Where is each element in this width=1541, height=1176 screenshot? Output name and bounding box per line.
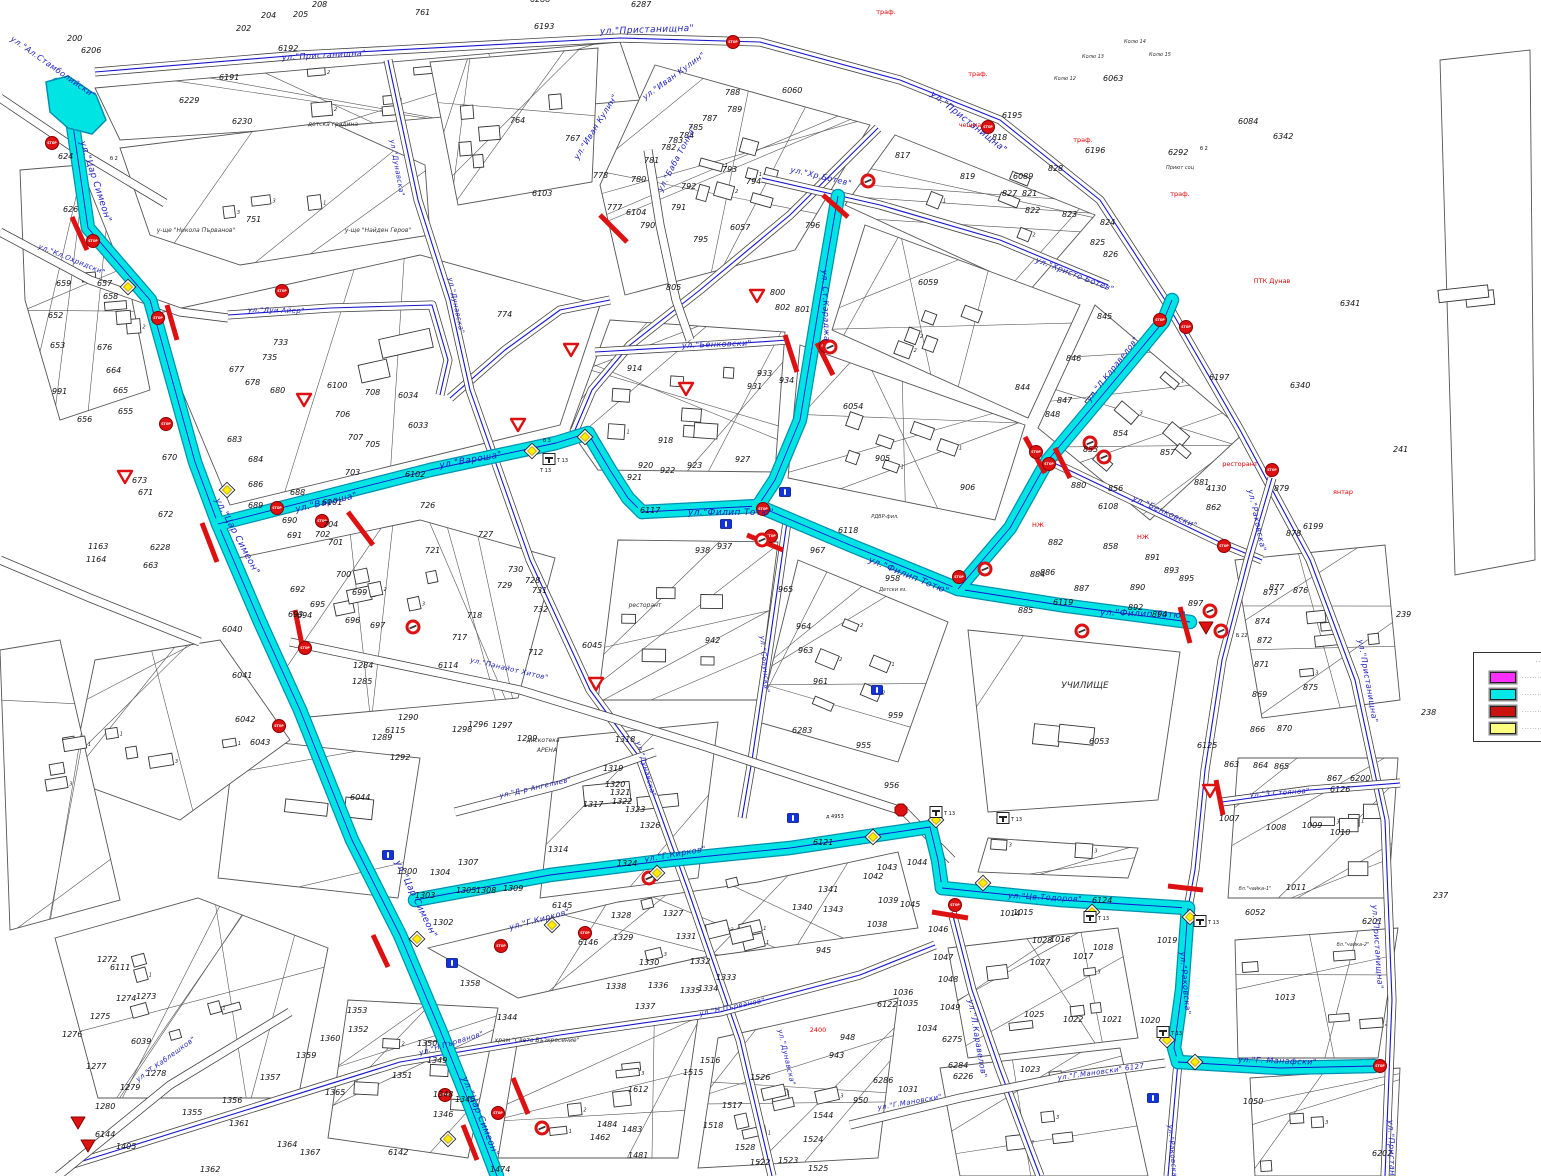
building-number: 1 <box>627 430 630 436</box>
parcel-number: 1483 <box>622 1125 642 1134</box>
parcel-number: 822 <box>1025 206 1040 215</box>
parcel-number: 1474 <box>490 1165 510 1174</box>
parcel-number: 6191 <box>219 73 239 82</box>
parcel-number: 1338 <box>606 982 626 991</box>
parcel-number: 653 <box>50 341 65 350</box>
parcel-number: 1337 <box>635 1002 656 1011</box>
parcel-number: 934 <box>779 376 794 385</box>
parcel-number: 664 <box>106 366 121 375</box>
parcel-number: 1020 <box>1140 1016 1160 1025</box>
building-number: 3 <box>1325 1120 1328 1126</box>
building-footprint <box>1075 843 1093 859</box>
parcel-number: 200 <box>67 34 82 43</box>
building-number: 3 <box>840 1094 843 1100</box>
parcel-number: 1330 <box>639 958 659 967</box>
yield-sign-icon <box>750 290 764 302</box>
parcel-number: 1017 <box>1073 952 1094 961</box>
parcel-number: 943 <box>829 1051 844 1060</box>
utility-annotation-label: 2400 <box>810 1026 827 1034</box>
building-footprint <box>311 101 333 117</box>
stop-sign-text: STOP <box>161 422 171 426</box>
parcel-number: 933 <box>757 369 772 378</box>
parcel-number: 1484 <box>597 1120 617 1129</box>
parcel-number: 706 <box>335 410 350 419</box>
parcel-number: 6102 <box>405 470 425 479</box>
parcel-number: 241 <box>1393 445 1408 454</box>
parcel-number: 6040 <box>222 625 242 634</box>
parcel-number: 789 <box>727 105 742 114</box>
parcel-number: 1331 <box>676 932 696 941</box>
building-number: 2 <box>920 334 923 340</box>
parcel-number: 856 <box>1108 484 1123 493</box>
parcel-number: 897 <box>1188 599 1204 608</box>
parcel-number: 751 <box>246 215 261 224</box>
parcel-number: 1329 <box>613 933 633 942</box>
parcel-number: 6199 <box>1303 522 1323 531</box>
parcel-number: 963 <box>798 646 813 655</box>
parcel-number: 821 <box>1022 189 1037 198</box>
parcel-number: 1612 <box>628 1085 648 1094</box>
parcel-number: 945 <box>816 946 831 955</box>
parcel-number: 781 <box>644 156 659 165</box>
priority-triangle-icon <box>71 1117 85 1129</box>
building-footprint <box>208 1001 222 1015</box>
parcel-number: 826 <box>1103 250 1118 259</box>
parcel-number: 847 <box>1057 396 1073 405</box>
parcel-number: 689 <box>248 501 263 510</box>
building-number: 1 <box>222 1006 225 1012</box>
parcel-number: 6059 <box>918 278 938 287</box>
legend-item-cyan-pipe: ········· <box>1490 686 1541 703</box>
parcel-number: 792 <box>681 182 696 191</box>
building-number: 1 <box>763 926 766 932</box>
parcel-number: 672 <box>158 510 173 519</box>
parcel-number: 688 <box>290 488 305 497</box>
parcel-number: 867 <box>1327 774 1343 783</box>
parcel-number: 6275 <box>942 1035 962 1044</box>
parcel-number: 1367 <box>300 1148 321 1157</box>
poi-label: бл."чайка-1" <box>1239 886 1272 892</box>
junction-sign-label: Т 13 <box>1207 920 1219 926</box>
parcel-number: 1516 <box>700 1056 720 1065</box>
building-number: 1 <box>787 1090 790 1096</box>
parcel-number: 1042 <box>863 872 883 881</box>
parcel-number: 239 <box>1396 610 1411 619</box>
parcel-number: 774 <box>497 310 512 319</box>
parcel-number: 1050 <box>1243 1097 1263 1106</box>
parcel-number: 6142 <box>388 1148 408 1157</box>
stop-sign-text: STOP <box>1219 544 1229 548</box>
parcel-number: 846 <box>1066 354 1081 363</box>
map-legend: ·· ···· ································… <box>1473 652 1541 742</box>
parcel-number: 626 <box>63 205 78 214</box>
parcel-number: 6292 <box>1168 148 1188 157</box>
parcel-number: 6043 <box>250 738 270 747</box>
parcel-number: 863 <box>1224 760 1239 769</box>
parcel-number: 1305 <box>456 886 476 895</box>
parcel-number: 937 <box>717 542 733 551</box>
junction-sign-label: Т 13 <box>556 458 568 464</box>
parcel-number: 1279 <box>120 1083 140 1092</box>
parcel-number: 801 <box>795 305 810 314</box>
parcel-number: 880 <box>1071 481 1086 490</box>
building-number: 3 <box>1056 1115 1059 1121</box>
stop-sign-text: STOP <box>954 575 964 579</box>
stop-sign-text: STOP <box>1155 318 1165 322</box>
parcel-number: 1046 <box>928 925 948 934</box>
stop-sign-text: STOP <box>274 724 284 728</box>
building-footprint <box>567 1103 582 1116</box>
parcel-number: 1525 <box>808 1164 828 1173</box>
parcel-number: 1307 <box>458 858 479 867</box>
yellow-pipe-swatch <box>1490 723 1516 734</box>
building-footprint <box>549 94 562 110</box>
building-footprint <box>1290 1113 1304 1123</box>
info-sign-glyph <box>1152 1095 1154 1101</box>
parcel-number: 1356 <box>222 1096 242 1105</box>
parcel-number: 791 <box>671 203 686 212</box>
building-footprint <box>105 727 118 739</box>
parcel-number: 1015 <box>1013 908 1033 917</box>
building-footprint <box>694 423 718 440</box>
parcel-number: 692 <box>290 585 305 594</box>
parcel-number: 6340 <box>1290 381 1310 390</box>
parcel-number: 624 <box>58 152 73 161</box>
stop-sign-text: STOP <box>1267 468 1277 472</box>
parcel-number: 761 <box>415 8 430 17</box>
yield-sign-icon <box>118 471 132 483</box>
legend-item-label: ········· <box>1522 709 1541 715</box>
parcel-number: 1044 <box>907 858 927 867</box>
parcel-number: 1332 <box>690 957 710 966</box>
parcel-number: 717 <box>452 633 468 642</box>
parcel-number: 873 <box>1263 588 1278 597</box>
parcel-number: 959 <box>888 711 903 720</box>
parcel-number: 848 <box>1045 410 1060 419</box>
parcel-number: 964 <box>796 622 811 631</box>
building-footprint <box>1090 1002 1101 1013</box>
parcel-number: 906 <box>960 483 975 492</box>
building-number: 3 <box>237 210 240 216</box>
utility-annotation-label: НЖ <box>1137 533 1149 541</box>
parcel-number: 1013 <box>1275 993 1295 1002</box>
parcel-number: 6053 <box>1089 737 1109 746</box>
parcel-number: 1034 <box>917 1024 937 1033</box>
parcel-number: 1164 <box>86 555 106 564</box>
parcel-number: 767 <box>565 134 581 143</box>
parcel-number: 819 <box>960 172 975 181</box>
parcel-number: 931 <box>747 382 762 391</box>
parcel-number: 6057 <box>730 223 751 232</box>
parcel-number: 858 <box>1103 542 1118 551</box>
parcel-number: 1526 <box>750 1073 770 1082</box>
parcel-number: 6144 <box>95 1130 115 1139</box>
poi-label: дискотека <box>525 737 559 744</box>
parcel-number: 1010 <box>1330 828 1350 837</box>
parcel-number: 764 <box>510 116 525 125</box>
building-footprint <box>473 154 484 168</box>
parcel-number: 788 <box>725 88 740 97</box>
parcel-number: 6200 <box>1350 774 1370 783</box>
sign-code-label: д 4953 <box>826 814 844 820</box>
parcel-number: 208 <box>312 0 327 9</box>
building-footprint <box>251 195 271 206</box>
parcel-number: 6196 <box>1085 146 1105 155</box>
poi-label: у-ще "Никола Първанов" <box>156 227 236 234</box>
parcel-number: 727 <box>478 530 494 539</box>
street-name-label: ул."Луи Айер" <box>247 306 305 315</box>
parcel-number: 1335 <box>680 986 700 995</box>
building-number: 3 <box>1140 411 1143 417</box>
poi-label: РДВР-фил. <box>871 514 898 520</box>
parcel-number: 704 <box>323 520 338 529</box>
parcel-number: 6229 <box>179 96 199 105</box>
parcel-number: 6342 <box>1273 132 1293 141</box>
building-footprint <box>622 614 636 623</box>
building-footprint <box>223 206 236 219</box>
building-number: 2 <box>402 1042 405 1048</box>
parcel-number: 961 <box>813 677 828 686</box>
map-viewport[interactable]: 2321233121212111112213221232313213131123… <box>0 0 1541 1176</box>
parcel-number: 828 <box>1048 164 1063 173</box>
parcel-number: 1359 <box>296 1051 316 1060</box>
junction-sign-label: Т 13 <box>1097 916 1109 922</box>
parcel-number: 6039 <box>131 1037 151 1046</box>
parcel-number: 927 <box>735 455 751 464</box>
parcel-number: 6052 <box>1245 908 1265 917</box>
parcel-number: 920 <box>638 461 653 470</box>
legend-item-label: ········· <box>1522 675 1541 681</box>
parcel-number: 866 <box>1250 725 1265 734</box>
parcel-number: 1324 <box>617 859 637 868</box>
building-number: 1 <box>891 662 894 668</box>
legend-item-label: ········· <box>1522 726 1541 732</box>
parcel-number: 4130 <box>1206 484 1226 493</box>
parcel-number: 697 <box>370 621 386 630</box>
parcel-number: 802 <box>775 303 790 312</box>
parcel-number: 733 <box>273 338 288 347</box>
legend-item-magenta-pipe: ········· <box>1490 669 1541 686</box>
parcel-number: 874 <box>1255 617 1270 626</box>
parcel-number: 1036 <box>893 988 913 997</box>
parcel-number: 708 <box>365 388 380 397</box>
building-number: 2 <box>1032 233 1035 239</box>
stop-sign-text: STOP <box>88 239 98 243</box>
building-number: 3 <box>422 602 425 608</box>
parcel-number: 817 <box>895 151 911 160</box>
parcel-number: 845 <box>1097 312 1112 321</box>
parcel-number: 6288 <box>530 0 550 4</box>
parcel-number: 1344 <box>497 1013 517 1022</box>
building-number: 1 <box>959 445 962 451</box>
parcel-number: 1355 <box>182 1108 202 1117</box>
parcel-number: 857 <box>1160 448 1176 457</box>
parcel-number: 777 <box>607 203 623 212</box>
parcel-number: 1280 <box>95 1102 115 1111</box>
stop-sign-text: STOP <box>1375 1064 1385 1068</box>
parcel-number: 6286 <box>873 1076 893 1085</box>
stop-sign-text: STOP <box>1031 450 1041 454</box>
stop-sign-text: STOP <box>728 40 738 44</box>
stop-sign-text: STOP <box>580 931 590 935</box>
parcel-number: 886 <box>1040 568 1055 577</box>
building-footprint <box>608 424 625 440</box>
parcel-number: 1336 <box>648 981 668 990</box>
parcel-number: 671 <box>138 488 153 497</box>
parcel-number: 1361 <box>229 1119 249 1128</box>
parcel-number: 967 <box>810 546 826 555</box>
building-footprint <box>222 738 236 748</box>
poi-label: Колю 15 <box>1149 52 1171 58</box>
building-number: 1 <box>1181 379 1184 385</box>
parcel-number: 701 <box>328 538 343 547</box>
parcel-number: 707 <box>348 433 364 442</box>
parcel-number: 1528 <box>735 1143 755 1152</box>
parcel-number: 1327 <box>663 909 684 918</box>
parcel-number: 1016 <box>1050 935 1070 944</box>
parcel-number: 678 <box>245 378 260 387</box>
parcel-number: 205 <box>293 10 308 19</box>
building-footprint <box>116 310 131 324</box>
parcel-number: 6060 <box>782 86 802 95</box>
parcel-number: 1357 <box>260 1073 281 1082</box>
parcel-number: 1274 <box>116 994 136 1003</box>
parcel-number: 6197 <box>1209 373 1230 382</box>
info-sign-glyph <box>784 489 786 495</box>
poi-label: Приют соц <box>1166 165 1195 171</box>
parcel-number: 1304 <box>430 868 450 877</box>
parcel-number: 794 <box>746 177 761 186</box>
legend-item-yellow-pipe: ········· <box>1490 720 1541 737</box>
parcel-number: 1031 <box>898 1085 918 1094</box>
parcel-number: 1023 <box>1020 1065 1040 1074</box>
parcel-number: 823 <box>1062 210 1077 219</box>
ul-sava <box>0 560 200 642</box>
parcel-number: 677 <box>229 365 245 374</box>
building-footprint <box>549 1126 567 1135</box>
building-footprint <box>1052 1132 1073 1144</box>
parcel-number: 6100 <box>327 381 347 390</box>
building-number: 1 <box>1361 818 1364 824</box>
parcel-number: 238 <box>1421 708 1436 717</box>
building-footprint <box>1311 1117 1323 1128</box>
street-name-label: ул."Филип Тотю" <box>687 508 774 518</box>
parcel-number: 6089 <box>1013 172 1033 181</box>
parcel-number: 1358 <box>460 979 480 988</box>
parcel-number: 658 <box>103 292 118 301</box>
building-footprint <box>1368 633 1379 644</box>
parcel-number: 699 <box>352 588 367 597</box>
parcel-number: 670 <box>162 453 177 462</box>
building-footprint <box>104 301 126 311</box>
street-name-label: ул."Пристанищна" <box>599 24 695 37</box>
parcel-number: 854 <box>1113 429 1128 438</box>
legend-item-red-pipe: ········· <box>1490 703 1541 720</box>
parcel-number: 862 <box>1206 503 1221 512</box>
utility-annotation-label: траф. <box>1073 136 1093 144</box>
parcel-number: 1340 <box>792 903 812 912</box>
parcel-number: 1007 <box>1219 814 1240 823</box>
building-number: 2 <box>142 324 145 330</box>
building-footprint <box>991 839 1007 850</box>
parcel-number: 891 <box>1145 553 1160 562</box>
city-map-canvas[interactable]: 2321233121212111112213221232313213131123… <box>0 0 1541 1176</box>
building-footprint <box>657 588 676 599</box>
building-footprint <box>459 141 472 156</box>
parcel-number: 825 <box>1090 238 1105 247</box>
poi-label: Колю 13 <box>1082 54 1104 60</box>
parcel-number: 1048 <box>938 975 958 984</box>
parcel-number: 663 <box>143 561 158 570</box>
building-footprint <box>1333 950 1355 961</box>
parcel-number: 6115 <box>385 726 405 735</box>
parcel-number: 1035 <box>898 999 918 1008</box>
parcel-number: 895 <box>1179 574 1194 583</box>
parcel-number: 6114 <box>438 661 458 670</box>
parcel-number: 712 <box>528 648 543 657</box>
parcel-number: 923 <box>687 461 702 470</box>
parcel-number: 1163 <box>88 542 108 551</box>
parcel-number: 1522 <box>750 1158 770 1167</box>
parcel-number: 721 <box>425 546 440 555</box>
parcel-number: 1045 <box>900 900 920 909</box>
parcel-number: 1362 <box>200 1165 220 1174</box>
parcel-number: 948 <box>840 1033 855 1042</box>
parcel-number: 1273 <box>136 992 156 1001</box>
parcel-number: 1321 <box>610 788 630 797</box>
building-footprint <box>1348 862 1368 876</box>
parcel-number: 676 <box>97 343 112 352</box>
parcel-number: 887 <box>1074 584 1090 593</box>
parcel-number: 942 <box>705 636 720 645</box>
parcel-number: 800 <box>770 288 785 297</box>
stop-sign-text: STOP <box>493 1111 503 1115</box>
building-number: 3 <box>69 782 72 788</box>
parcel-number: 1009 <box>1302 821 1322 830</box>
parcel-number: 1309 <box>503 884 523 893</box>
parcel-number: 1047 <box>933 953 954 962</box>
utility-annotation-label: траф. <box>1170 190 1190 198</box>
stop-sign-text: STOP <box>1044 462 1054 466</box>
parcel-number: 6226 <box>953 1072 973 1081</box>
street-name-label: ул."Пристанищна" <box>1386 1119 1398 1176</box>
parcel-number: 6125 <box>1197 741 1217 750</box>
parcel-number: 695 <box>310 600 325 609</box>
parcel-number: 657 <box>97 279 113 288</box>
parcel-number: 1481 <box>628 1151 648 1160</box>
parcel-number: 1328 <box>611 911 631 920</box>
utility-annotation-label: траф. <box>876 8 896 16</box>
parcel-number: 1021 <box>1102 1015 1122 1024</box>
building-footprint <box>1041 1111 1055 1123</box>
parcel-number: 918 <box>658 436 673 445</box>
parcel-number: 780 <box>631 175 646 184</box>
road-closure-bar-icon <box>785 335 797 372</box>
building-number: 1 <box>901 464 904 470</box>
legend-note: ·· ···· <box>1490 659 1541 665</box>
parcel-number: 6122 <box>877 1000 897 1009</box>
parcel-number: 790 <box>640 221 655 230</box>
building-footprint <box>986 965 1008 981</box>
building-number: 2 <box>384 587 387 593</box>
building-number: 2 <box>583 1108 586 1114</box>
building-footprint <box>641 898 654 910</box>
parcel-number: 793 <box>722 165 737 174</box>
building-number: 1 <box>88 742 91 748</box>
junction-sign-label: Т 13 <box>1010 817 1022 823</box>
building-number: 1 <box>149 973 152 979</box>
parcel-number: 1043 <box>877 863 897 872</box>
